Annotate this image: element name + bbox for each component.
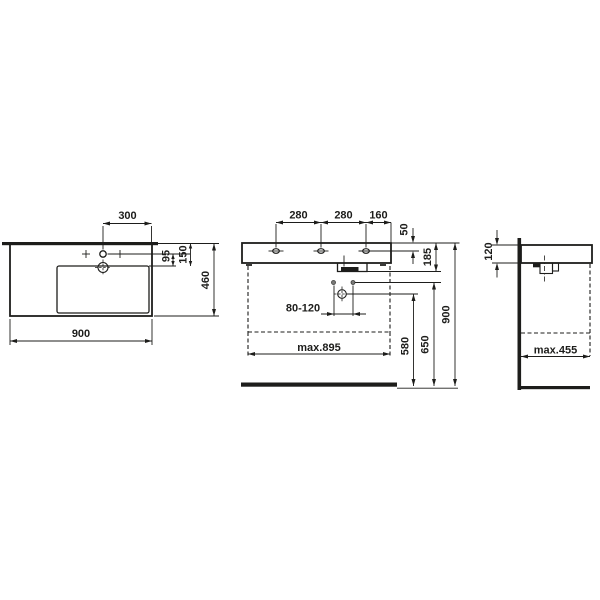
arrowhead	[353, 312, 360, 316]
arrowhead	[583, 355, 590, 359]
optional-tap-hole-left	[82, 250, 90, 258]
arrowhead	[453, 379, 457, 386]
arrowhead	[212, 309, 216, 316]
arrowhead	[145, 339, 152, 343]
dim-max-unit-depth: max.455	[521, 345, 590, 359]
dim-label-900: 900	[72, 328, 90, 340]
dim-label-300: 300	[118, 210, 136, 222]
dim-rim-thickness: 120	[483, 230, 521, 278]
dim-rim-to-trap: 185	[367, 243, 441, 272]
arrowhead	[521, 355, 528, 359]
dim-label-280-right: 280	[334, 210, 352, 222]
dim-label-460: 460	[200, 271, 212, 289]
technical-drawing: 300 900 460 95	[0, 0, 600, 600]
arrowhead	[412, 379, 416, 386]
arrowhead	[276, 221, 283, 225]
dim-label-150: 150	[178, 245, 190, 263]
waste-trap-side	[533, 256, 559, 284]
dim-label-900-front: 900	[441, 305, 453, 323]
dim-label-580: 580	[400, 337, 412, 355]
arrowhead	[434, 243, 438, 250]
dim-floor-to-rim: 900	[441, 243, 458, 386]
dim-overall-width: 900	[10, 319, 152, 345]
dim-label-160: 160	[369, 210, 387, 222]
mounting-hole-2	[314, 249, 329, 254]
tap-hole	[100, 251, 106, 257]
dim-supply-spacing: 80-120	[286, 286, 366, 317]
furniture-clearance-box-side	[521, 264, 590, 356]
dim-hole-pitch-row: 280 280 160	[276, 210, 391, 248]
arrowhead	[314, 221, 321, 225]
arrowhead	[321, 221, 328, 225]
floor-line	[241, 383, 397, 387]
arrowhead	[212, 244, 216, 251]
arrowhead	[359, 221, 366, 225]
dim-floor-to-waste: 580	[347, 294, 419, 386]
dim-floor-to-supply: 650	[355, 283, 441, 387]
arrowhead	[495, 263, 499, 270]
arrowhead	[432, 283, 436, 290]
arrowhead	[145, 222, 152, 226]
dim-label-max895: max.895	[297, 342, 340, 354]
supply-connection-left	[332, 281, 336, 285]
dim-max-unit-width: max.895	[248, 342, 390, 356]
dim-label-280-left: 280	[289, 210, 307, 222]
arrowhead	[495, 238, 499, 245]
drawing-canvas: 300 900 460 95	[0, 0, 600, 600]
supply-connection-right	[351, 281, 355, 285]
wall-bracket-right	[380, 263, 386, 266]
arrowhead	[432, 379, 436, 386]
arrowhead	[10, 339, 17, 343]
arrowhead	[453, 243, 457, 250]
mounting-hole-1	[269, 249, 284, 254]
dim-label-50: 50	[399, 223, 411, 235]
arrowhead	[434, 265, 438, 272]
basin-side-outline	[521, 245, 592, 263]
dim-rear-to-bowl: 150	[178, 244, 193, 267]
arrowhead	[383, 352, 390, 356]
basin-outline	[10, 244, 152, 316]
arrowhead	[411, 251, 415, 258]
arrowhead	[103, 222, 110, 226]
dim-label-120: 120	[483, 242, 495, 260]
dim-label-185: 185	[422, 248, 434, 266]
arrowhead	[327, 312, 334, 316]
top-view: 300 900 460 95	[2, 210, 219, 345]
floor-line-side	[521, 386, 590, 389]
arrowhead	[412, 294, 416, 301]
arrowhead	[411, 236, 415, 243]
front-view: 280 280 160 50 185 80-12	[241, 210, 460, 389]
waste-drain-symbol	[95, 260, 111, 276]
dim-label-650: 650	[420, 335, 432, 353]
arrowhead	[248, 352, 255, 356]
wall-bracket-left	[246, 263, 252, 266]
dim-label-80-120: 80-120	[286, 303, 320, 315]
mounting-hole-3	[359, 249, 420, 254]
side-view: 120 max.455	[483, 230, 592, 390]
dim-label-max455: max.455	[534, 345, 577, 357]
dim-label-95: 95	[161, 250, 173, 262]
